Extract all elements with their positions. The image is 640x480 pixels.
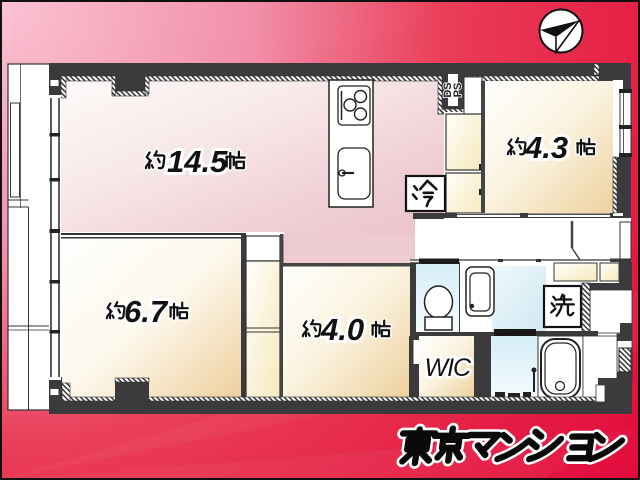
svg-text:DS: DS [442,82,454,97]
svg-text:4.3: 4.3 [524,130,568,165]
svg-text:4.0: 4.0 [320,312,364,347]
svg-text:WIC: WIC [425,354,473,382]
svg-text:14.5: 14.5 [167,144,228,179]
svg-text:6.7: 6.7 [124,294,169,329]
